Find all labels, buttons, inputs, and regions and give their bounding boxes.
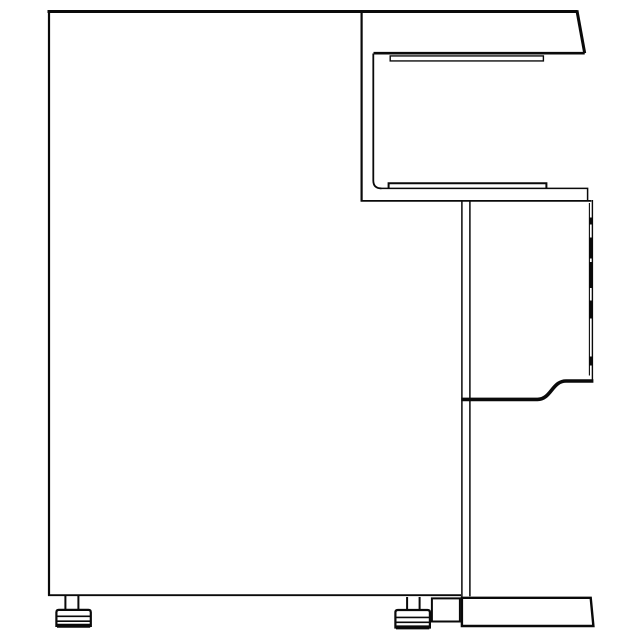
left-foot-pad-lines (56, 616, 90, 621)
left-foot-stem (65, 596, 78, 611)
under-counter-strip (390, 56, 543, 61)
door-bottom-curve (461, 381, 593, 399)
plinth-connector-outline (432, 598, 460, 621)
technical-drawing-page (0, 0, 640, 640)
arm-shelf-strip (389, 183, 547, 188)
right-foot-stem (407, 597, 420, 610)
hutch-upright-inner-edge (373, 54, 381, 189)
right-foot-pad-lines (395, 617, 430, 622)
desk-arm-inner-edge (380, 188, 588, 200)
plinth-base-outline (462, 598, 594, 626)
cabinet-side-profile-drawing (0, 0, 640, 640)
counter-right-slant-edge (577, 10, 585, 53)
